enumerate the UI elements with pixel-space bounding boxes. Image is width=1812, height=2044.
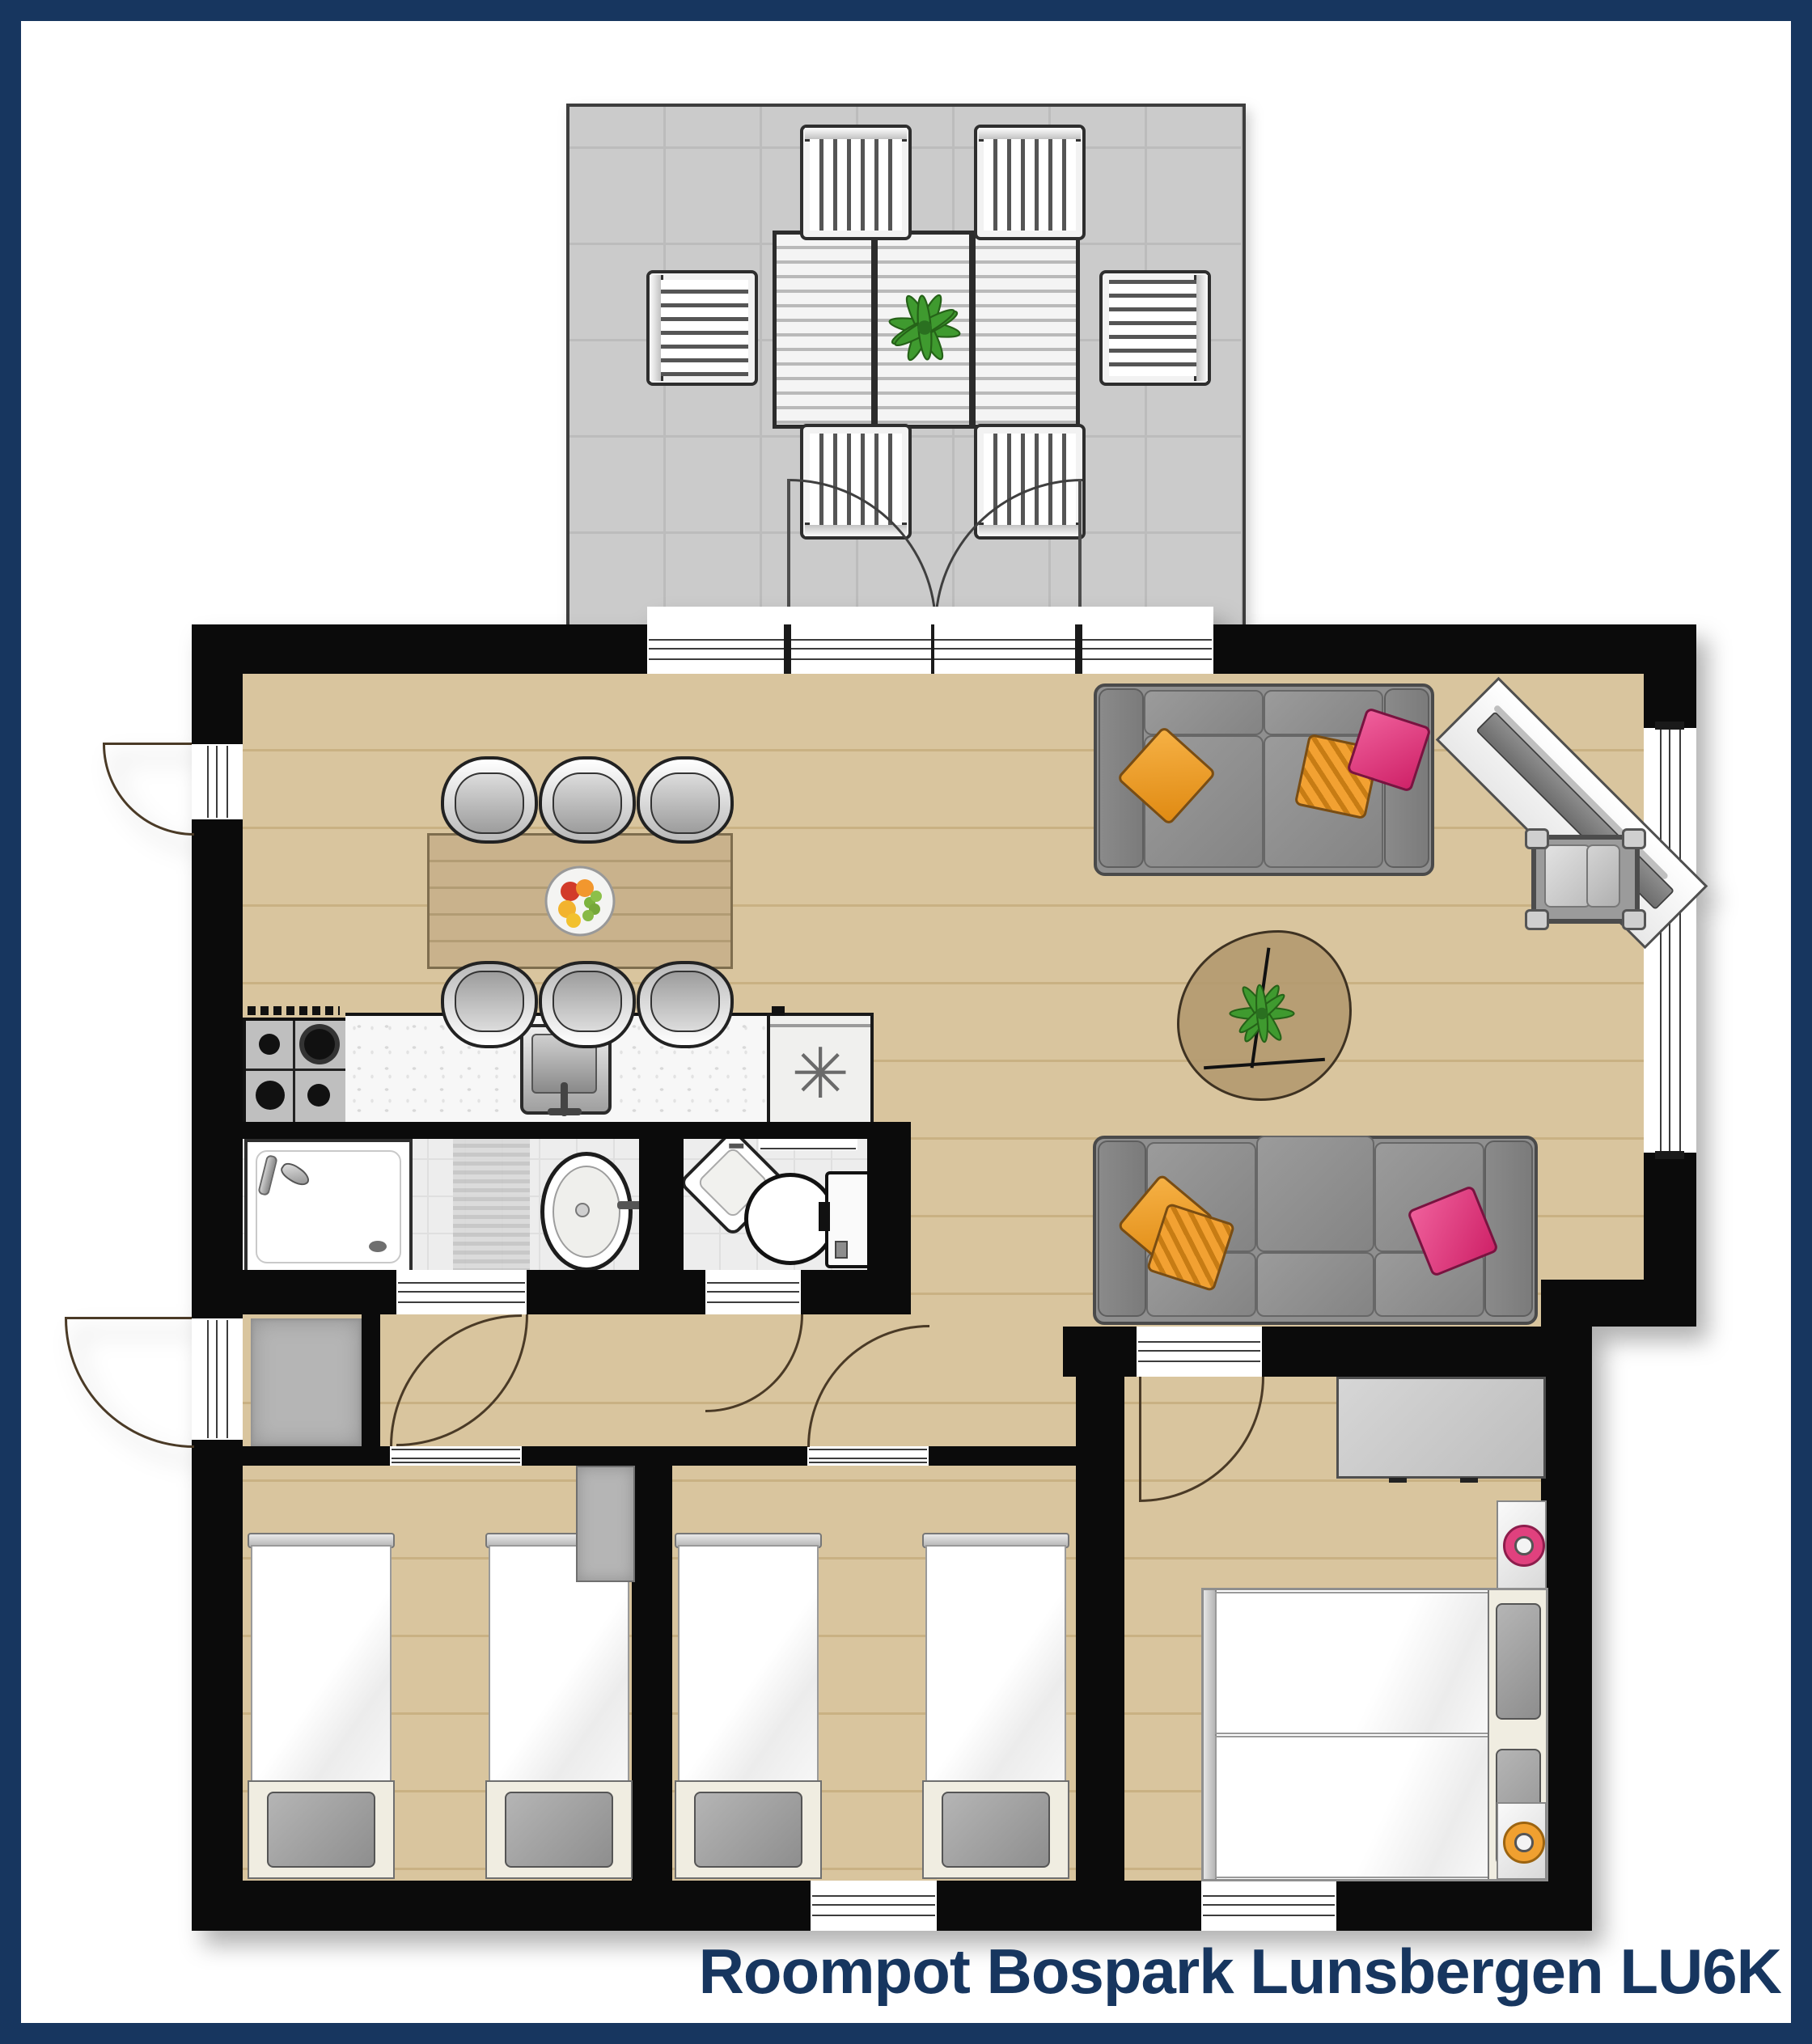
caption-title: Roompot Bospark Lunsbergen LU6K	[699, 1935, 1781, 2008]
lamp-orange-icon	[1503, 1822, 1545, 1864]
burner-large	[256, 1081, 285, 1110]
wall-bedrooms-top-a	[192, 1446, 390, 1466]
garden-door-leaf	[103, 743, 192, 745]
bedroom-cabinet	[576, 1466, 635, 1582]
single-bed	[675, 1533, 822, 1879]
double-duvet-bottom	[1215, 1736, 1490, 1878]
rightbedroom-door-leaf	[1139, 1377, 1141, 1500]
dresser-handle	[1389, 1478, 1407, 1483]
facade-window-door-band	[647, 624, 1213, 674]
wall-bottom-c	[1336, 1881, 1592, 1931]
sofa-back-cushion	[1256, 1136, 1374, 1252]
wicker-foot	[1622, 909, 1646, 930]
nightstand	[1497, 1802, 1547, 1880]
wall-bedroomA-B-divider	[632, 1466, 672, 1881]
wall-bath-bottom-left	[243, 1270, 396, 1314]
wall-rightbedroom-top-a	[1063, 1327, 1137, 1377]
dining-chair	[441, 756, 538, 844]
corner-sink-faucet	[729, 1144, 743, 1149]
wall-right-lower	[1541, 1280, 1592, 1931]
house: ✳	[0, 0, 1812, 2044]
wall-top-right	[1213, 624, 1696, 674]
double-pillow	[1496, 1603, 1541, 1720]
dresser-desk	[1336, 1377, 1546, 1479]
decor-stick	[1204, 1058, 1325, 1069]
toilet-flush-button	[835, 1241, 848, 1259]
toilet	[744, 1171, 867, 1262]
bathroom-sink-plug	[575, 1203, 590, 1217]
wicker-foot	[1525, 828, 1549, 849]
wall-toilet-right	[867, 1122, 911, 1314]
bedroomB-door-threshold	[807, 1446, 929, 1466]
toilet-cistern	[825, 1171, 872, 1268]
wicker-foot	[1622, 828, 1646, 849]
shower-head-icon	[257, 1150, 301, 1194]
mullion-post	[1075, 624, 1082, 674]
toilet-door-threshold	[705, 1270, 801, 1314]
coffee-table-plant-icon	[1220, 971, 1304, 1056]
single-bed	[922, 1533, 1069, 1879]
floorplan-canvas: ✳	[0, 0, 1812, 2044]
wall-bath-toilet-divider	[639, 1139, 684, 1314]
burner-medium	[307, 1084, 330, 1107]
wall-bedrooms-top-c	[929, 1446, 1076, 1466]
sofa-armrest	[1484, 1140, 1533, 1317]
wall-left-upper	[192, 624, 243, 744]
utility-asterisk-icon: ✳	[770, 1022, 870, 1125]
wall-top-left	[192, 624, 647, 674]
burner-large-ring	[304, 1029, 335, 1060]
lamp-pink-icon	[1503, 1525, 1545, 1567]
mullion-post	[784, 624, 791, 674]
mullion-post	[931, 624, 934, 674]
dining-chair	[539, 961, 636, 1048]
single-bed	[485, 1533, 633, 1879]
wall-rightbedroom-top-b	[1262, 1327, 1541, 1377]
wall-left-lower	[192, 1440, 243, 1931]
shower-tray	[244, 1139, 413, 1275]
terrace-sill	[647, 607, 1213, 624]
hob-knobs	[248, 1006, 340, 1015]
fruit-bowl-icon	[543, 864, 617, 938]
nightstand	[1497, 1500, 1547, 1590]
entrance-door	[192, 1318, 243, 1440]
bathroom-sink	[540, 1152, 633, 1272]
wicker-cushion	[1544, 844, 1591, 908]
wall-under-kitchen	[243, 1122, 911, 1139]
sink-faucet-handle	[548, 1108, 582, 1115]
wall-left-middle	[192, 819, 243, 1318]
wall-bedrooms-top-b	[522, 1446, 807, 1466]
bedroomB-window	[811, 1881, 937, 1931]
wicker-chair	[1531, 835, 1640, 924]
dining-table	[427, 833, 733, 969]
window-cap	[1655, 1151, 1684, 1159]
wall-vestibule	[362, 1314, 380, 1446]
entrance-door-swing	[65, 1318, 194, 1448]
gas-hob	[243, 1018, 352, 1128]
burner-small	[259, 1034, 280, 1055]
shower-drain	[369, 1241, 387, 1252]
entrance-doormat	[251, 1318, 362, 1446]
utility-cupboard: ✳	[767, 1013, 874, 1128]
wall-bottom-b	[937, 1881, 1201, 1931]
dining-chair	[539, 756, 636, 844]
wicker-foot	[1525, 909, 1549, 930]
toilet-seat-hinge	[819, 1202, 830, 1231]
rightbedroom-window	[1201, 1881, 1336, 1931]
dining-chair	[441, 961, 538, 1048]
dresser-handle	[1460, 1478, 1478, 1483]
entrance-door-leaf	[65, 1317, 192, 1319]
garden-door-swing	[103, 744, 194, 836]
vanity-counter	[453, 1139, 530, 1270]
wicker-cushion	[1586, 844, 1620, 908]
dining-chair	[637, 756, 734, 844]
wall-bedroomB-right-divider	[1076, 1377, 1124, 1881]
wall-bottom-a	[192, 1881, 811, 1931]
left-garden-door	[192, 744, 243, 819]
utility-notch	[772, 1006, 785, 1016]
single-bed	[248, 1533, 395, 1879]
bathroom-door-threshold	[396, 1270, 527, 1314]
dining-chair	[637, 961, 734, 1048]
bedroomA-door-threshold	[390, 1446, 522, 1466]
rightbedroom-door-threshold	[1137, 1327, 1262, 1377]
double-duvet-top	[1215, 1592, 1490, 1734]
sofa-seat-cushion	[1256, 1252, 1374, 1317]
